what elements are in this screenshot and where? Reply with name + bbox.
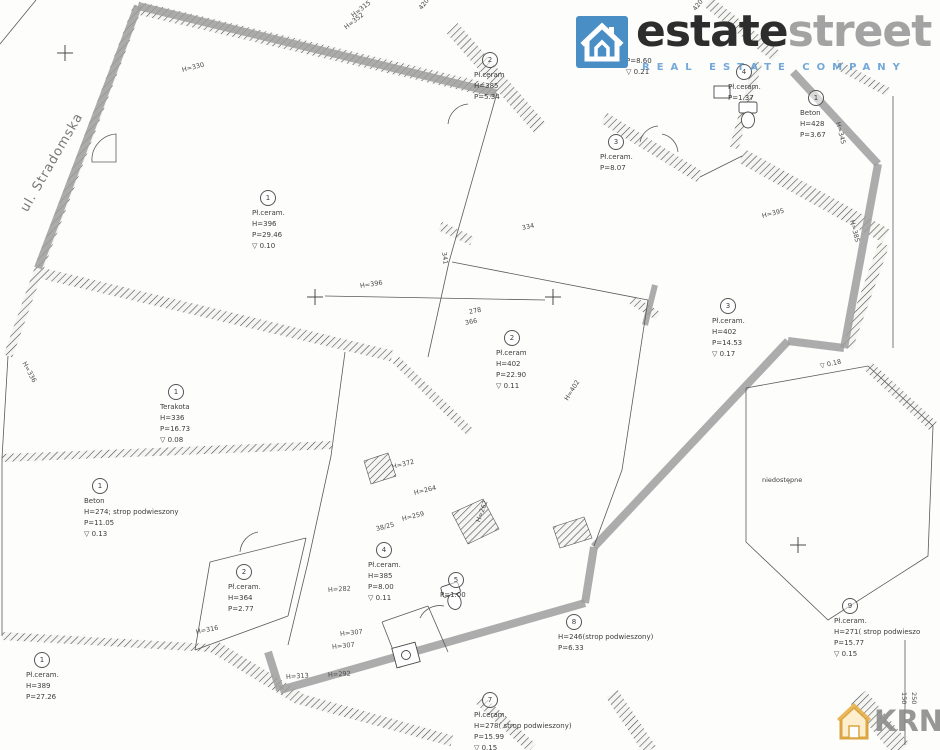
room-number: 2 bbox=[236, 564, 252, 580]
room-attribute: Pł.ceram. bbox=[252, 208, 285, 219]
room-attribute: P=22.90 bbox=[496, 370, 527, 381]
room-attribute: H=246(strop podwieszony) bbox=[558, 632, 653, 643]
room-attribute: ▽ 0.11 bbox=[368, 593, 401, 604]
dimension-label: H=292 bbox=[328, 669, 351, 679]
room-number: 1 bbox=[168, 384, 184, 400]
room-number: 3 bbox=[720, 298, 736, 314]
dimension-label: H=282 bbox=[328, 584, 351, 594]
floorplan-page: ul. Stradomska niedostępne 1Pł.ceram.H=3… bbox=[0, 0, 940, 750]
room-attribute: Pł.ceram. bbox=[26, 670, 59, 681]
room-attribute: Beton bbox=[800, 108, 826, 119]
room-attribute: H=402 bbox=[496, 359, 527, 370]
room-label: 1TerakotaH=336P=16.73▽ 0.08 bbox=[160, 384, 190, 445]
door-arcs bbox=[92, 104, 678, 618]
room-attribute: P=14.53 bbox=[712, 338, 745, 349]
room-number: 9 bbox=[842, 598, 858, 614]
room-attribute: Beton bbox=[84, 496, 178, 507]
room-attribute: H=364 bbox=[228, 593, 261, 604]
room-attribute: P=15.99 bbox=[474, 732, 572, 743]
room-number: 1 bbox=[808, 90, 824, 106]
room-attribute: ▽ 0.10 bbox=[252, 241, 285, 252]
room-attribute: H=428 bbox=[800, 119, 826, 130]
room-attribute: P=1.37 bbox=[728, 93, 761, 104]
room-attribute: H=385 bbox=[368, 571, 401, 582]
room-attribute: Pł.ceram. bbox=[368, 560, 401, 571]
room-attribute: ▽ 0.15 bbox=[834, 649, 920, 660]
room-attribute: P=15.77 bbox=[834, 638, 920, 649]
room-label: 1Pł.ceram.H=389P=27.26 bbox=[26, 652, 59, 703]
room-attribute: Pł.ceram bbox=[496, 348, 527, 359]
room-attribute: P=2.77 bbox=[228, 604, 261, 615]
room-label: 1BetonH=274; strop podwieszonyP=11.05▽ 0… bbox=[84, 478, 178, 539]
room-attribute: Pł.ceram. bbox=[728, 82, 761, 93]
room-attribute: H=271( strop podwieszo bbox=[834, 627, 920, 638]
room-number: 1 bbox=[260, 190, 276, 206]
room-attribute: Pł.ceram. bbox=[834, 616, 920, 627]
logo-word-estate: estate bbox=[636, 6, 788, 57]
krn-watermark: KRN.pl bbox=[836, 702, 940, 740]
room-label: 5P=1.00 bbox=[440, 572, 466, 601]
room-label: 9Pł.ceram.H=271( strop podwieszoP=15.77▽… bbox=[834, 598, 920, 659]
room-attribute: P=1.00 bbox=[440, 590, 466, 601]
room-label: 3Pł.ceram.H=402P=14.53▽ 0.17 bbox=[712, 298, 745, 359]
room-attribute: Terakota bbox=[160, 402, 190, 413]
room-attribute: ▽ 0.08 bbox=[160, 435, 190, 446]
room-label: 8H=246(strop podwieszony)P=6.33 bbox=[558, 614, 653, 654]
room-attribute: P=5.34 bbox=[474, 92, 505, 103]
room-attribute: H=389 bbox=[26, 681, 59, 692]
inaccessible-area-label: niedostępne bbox=[762, 476, 802, 484]
room-attribute: H=402 bbox=[712, 327, 745, 338]
logo-tagline: REAL ESTATE COMPANY bbox=[642, 62, 907, 73]
room-label: 2Pł.ceramH=385P=5.34 bbox=[474, 52, 505, 103]
room-attribute: ▽ 0.15 bbox=[474, 743, 572, 750]
room-number: 4 bbox=[376, 542, 392, 558]
room-number: 1 bbox=[92, 478, 108, 494]
room-attribute: H=336 bbox=[160, 413, 190, 424]
room-attribute: Pł.ceram. bbox=[228, 582, 261, 593]
room-label: 3Pł.ceram.P=8.07 bbox=[600, 134, 633, 174]
room-number: 3 bbox=[608, 134, 624, 150]
krn-house-icon bbox=[836, 702, 872, 740]
room-attribute: Pł.ceram bbox=[474, 70, 505, 81]
sink-icon bbox=[392, 642, 420, 668]
dimension-label: 341 bbox=[440, 251, 450, 264]
room-attribute: H=396 bbox=[252, 219, 285, 230]
estatestreet-logo: estatestreet REAL ESTATE COMPANY bbox=[576, 14, 906, 78]
room-number: 2 bbox=[504, 330, 520, 346]
estatestreet-house-icon bbox=[576, 16, 628, 68]
room-label: 1BetonH=428P=3.67 bbox=[800, 90, 826, 141]
room-attribute: Pł.ceram. bbox=[712, 316, 745, 327]
room-attribute: P=11.05 bbox=[84, 518, 178, 529]
room-attribute: P=27.26 bbox=[26, 692, 59, 703]
room-attribute: P=8.00 bbox=[368, 582, 401, 593]
room-attribute: Pł.ceram. bbox=[474, 710, 572, 721]
room-attribute: P=29.46 bbox=[252, 230, 285, 241]
room-attribute: ▽ 0.11 bbox=[496, 381, 527, 392]
room-number: 8 bbox=[566, 614, 582, 630]
room-attribute: ▽ 0.13 bbox=[84, 529, 178, 540]
room-attribute: ▽ 0.17 bbox=[712, 349, 745, 360]
dimension-label: H=313 bbox=[286, 671, 309, 681]
room-attribute: H=385 bbox=[474, 81, 505, 92]
room-number: 2 bbox=[482, 52, 498, 68]
room-label: 1Pł.ceram.H=396P=29.46▽ 0.10 bbox=[252, 190, 285, 251]
floorplan-drawing bbox=[0, 0, 940, 750]
room-attribute: P=8.07 bbox=[600, 163, 633, 174]
krn-name: KRN bbox=[874, 704, 940, 738]
krn-label: KRN.pl bbox=[874, 704, 940, 738]
logo-wordmark: estatestreet bbox=[636, 6, 931, 57]
room-attribute: P=3.67 bbox=[800, 130, 826, 141]
room-label: 4Pł.ceram.H=385P=8.00▽ 0.11 bbox=[368, 542, 401, 603]
room-number: 1 bbox=[34, 652, 50, 668]
room-attribute: H=278( strop podwieszony) bbox=[474, 721, 572, 732]
room-attribute: Pł.ceram. bbox=[600, 152, 633, 163]
room-number: 7 bbox=[482, 692, 498, 708]
room-attribute: H=274; strop podwieszony bbox=[84, 507, 178, 518]
logo-word-street: street bbox=[788, 6, 932, 57]
room-label: 2Pł.ceram.H=364P=2.77 bbox=[228, 564, 261, 615]
room-attribute: P=16.73 bbox=[160, 424, 190, 435]
room-attribute: P=6.33 bbox=[558, 643, 653, 654]
room-label: 2Pł.ceramH=402P=22.90▽ 0.11 bbox=[496, 330, 527, 391]
room-label: 7Pł.ceram.H=278( strop podwieszony)P=15.… bbox=[474, 692, 572, 750]
room-number: 5 bbox=[448, 572, 464, 588]
